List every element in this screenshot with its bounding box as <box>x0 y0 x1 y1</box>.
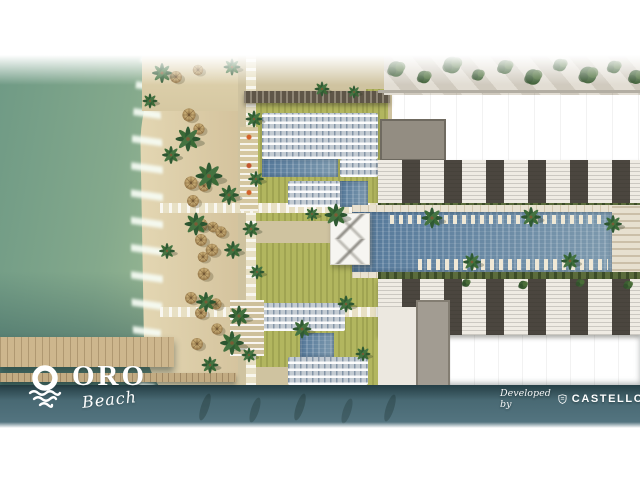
developer-credit: Developed by CASTELLO <box>500 388 640 410</box>
main-pool-loungers-north <box>390 215 606 224</box>
small-pool-mid <box>340 181 368 207</box>
lounger-grid-upper-right <box>340 159 378 177</box>
lounger-grid-mid <box>288 181 340 207</box>
building-north-units <box>378 160 640 204</box>
sun-over-waves-icon <box>24 362 66 410</box>
building-south-annex-gray <box>416 300 450 387</box>
resort-aerial-render: ORO Beach Developed by CASTELLO <box>0 0 640 480</box>
beach-loungers-strip <box>240 127 258 211</box>
castello-crest-icon <box>558 393 567 405</box>
main-pool-deck-east <box>612 205 640 278</box>
credit-name: CASTELLO <box>572 393 640 405</box>
building-south-annex-roof <box>378 307 420 387</box>
credit-prefix: Developed by <box>500 388 553 410</box>
logo-tagline: Beach <box>81 389 137 411</box>
small-pool-upper <box>262 159 338 177</box>
logo-text: ORO Beach <box>72 362 147 408</box>
pergola-strip <box>244 91 390 103</box>
tensile-canopy <box>330 213 370 265</box>
small-pool-lower <box>300 333 334 357</box>
white-fade-bottom <box>0 422 640 428</box>
main-pool-loungers-south <box>418 259 608 270</box>
building-north-annex-roof <box>380 119 446 161</box>
lounger-grid-tan <box>230 300 264 356</box>
oro-beach-logo: ORO Beach <box>24 362 147 410</box>
white-fade-top <box>0 55 640 85</box>
lounger-grid-bottom <box>288 357 368 385</box>
lounger-grid-lower <box>255 303 345 331</box>
lounger-grid-upper <box>262 113 378 159</box>
hedge-south <box>378 272 640 279</box>
